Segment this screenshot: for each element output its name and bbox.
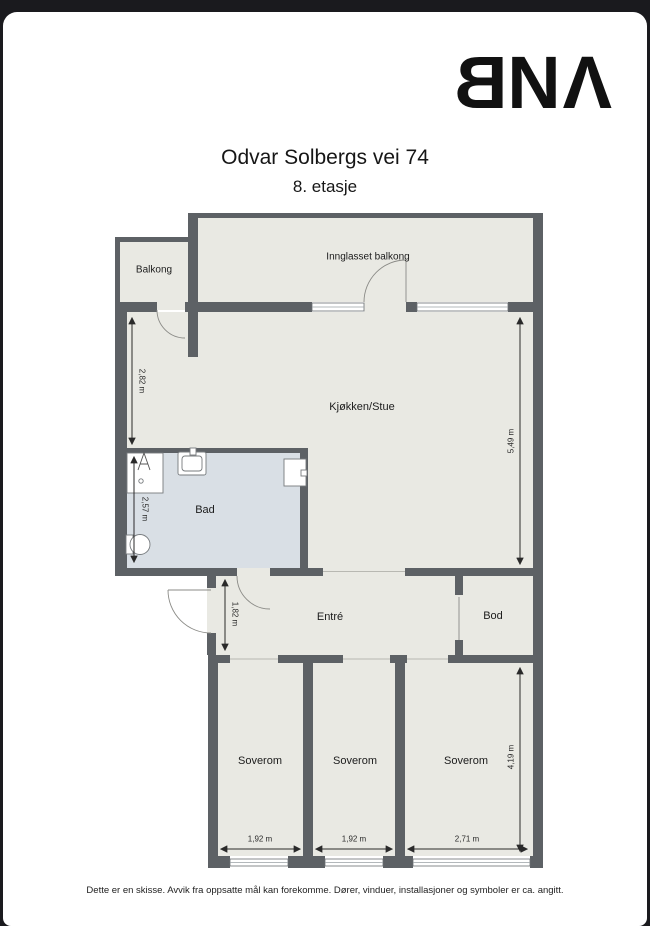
faucet-icon bbox=[190, 448, 196, 455]
measurement-soverom-2-width: 1,92 m bbox=[342, 835, 366, 844]
measurement-soverom-3-width: 2,71 m bbox=[455, 835, 479, 844]
disclaimer-text: Dette er en skisse. Avvik fra oppsatte m… bbox=[0, 885, 650, 896]
logo-letter-a: Λ bbox=[563, 41, 614, 124]
phone-screen: BNΛ Odvar Solbergs vei 74 8. etasje Balk… bbox=[0, 0, 650, 926]
room-label-soverom-1: Soverom bbox=[238, 755, 282, 767]
floorplan-drawing bbox=[0, 0, 650, 926]
page-title: Odvar Solbergs vei 74 bbox=[0, 146, 650, 170]
room-label-innglasset-balkong: Innglasset balkong bbox=[326, 252, 409, 263]
room-label-soverom-3: Soverom bbox=[444, 755, 488, 767]
logo-letter-n: N bbox=[507, 41, 562, 124]
room-label-kjokken-stue: Kjøkken/Stue bbox=[329, 401, 394, 413]
room-label-bad: Bad bbox=[195, 504, 215, 516]
measurement-soverom-3-height: 4,19 m bbox=[507, 745, 516, 769]
measurement-bad: 2,57 m bbox=[141, 497, 150, 521]
shower-icon bbox=[127, 453, 163, 493]
faucet-icon bbox=[301, 470, 307, 476]
room-label-entre: Entré bbox=[317, 611, 343, 623]
room-label-soverom-2: Soverom bbox=[333, 755, 377, 767]
measurement-kjokken-right: 5,49 m bbox=[507, 429, 516, 453]
measurement-soverom-1-width: 1,92 m bbox=[248, 835, 272, 844]
measurement-kjokken-left: 2,82 m bbox=[138, 369, 147, 393]
measurement-entre: 1,82 m bbox=[231, 602, 240, 626]
entrance-door-arc bbox=[168, 590, 211, 633]
logo-letter-b: B bbox=[452, 46, 507, 120]
room-label-bod: Bod bbox=[483, 610, 503, 622]
bna-logo: BNΛ bbox=[452, 46, 614, 120]
room-label-balkong: Balkong bbox=[136, 265, 172, 276]
page-subtitle: 8. etasje bbox=[0, 177, 650, 197]
toilet-bowl-icon bbox=[130, 535, 150, 555]
